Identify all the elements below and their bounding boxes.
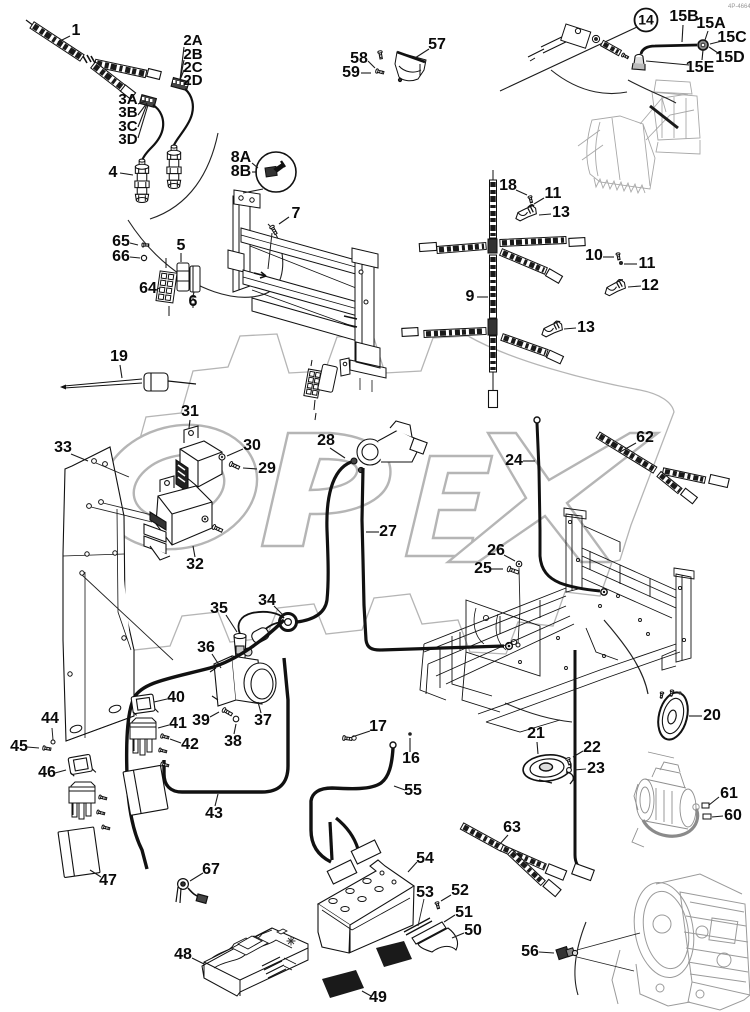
svg-text:15B: 15B [669,8,698,25]
svg-text:45: 45 [10,738,28,755]
svg-text:29: 29 [258,460,276,477]
svg-text:10: 10 [585,247,603,264]
svg-text:39: 39 [192,712,210,729]
svg-text:8B: 8B [231,163,251,180]
svg-text:34: 34 [258,592,276,609]
svg-text:12: 12 [641,277,659,294]
svg-text:21: 21 [527,725,545,742]
svg-text:3D: 3D [118,131,137,148]
svg-text:36: 36 [197,639,215,656]
svg-text:19: 19 [110,348,128,365]
svg-text:40: 40 [167,689,185,706]
svg-text:63: 63 [503,819,521,836]
svg-text:46: 46 [38,764,56,781]
svg-text:15C: 15C [717,29,747,46]
svg-text:5: 5 [177,237,186,254]
svg-text:27: 27 [379,523,397,540]
svg-text:67: 67 [202,861,220,878]
svg-text:24: 24 [505,452,523,469]
svg-text:32: 32 [186,556,204,573]
svg-text:23: 23 [587,760,605,777]
svg-text:15E: 15E [686,59,715,76]
svg-text:4: 4 [109,164,118,181]
svg-text:50: 50 [464,922,482,939]
svg-text:48: 48 [174,946,192,963]
svg-text:47: 47 [99,872,117,889]
svg-text:31: 31 [181,403,199,420]
svg-text:37: 37 [254,712,272,729]
svg-text:14: 14 [638,12,654,28]
svg-text:62: 62 [636,429,654,446]
svg-text:11: 11 [545,185,562,202]
svg-text:11: 11 [639,255,656,272]
svg-text:53: 53 [416,884,434,901]
svg-text:15D: 15D [715,49,744,66]
svg-text:55: 55 [404,782,422,799]
svg-text:16: 16 [402,750,420,767]
svg-text:42: 42 [181,736,199,753]
svg-text:54: 54 [416,850,434,867]
svg-text:57: 57 [428,36,446,53]
svg-text:41: 41 [169,715,187,732]
svg-text:66: 66 [112,248,130,265]
svg-text:64: 64 [139,280,157,297]
svg-text:18: 18 [499,177,517,194]
svg-text:1: 1 [72,22,81,39]
svg-text:26: 26 [487,542,505,559]
svg-text:20: 20 [703,707,721,724]
svg-text:4P-4664: 4P-4664 [728,4,750,10]
svg-text:2D: 2D [183,72,202,89]
svg-text:17: 17 [369,718,387,735]
svg-text:52: 52 [451,882,469,899]
svg-text:28: 28 [317,432,335,449]
svg-text:49: 49 [369,989,387,1006]
svg-text:7: 7 [292,205,301,222]
svg-text:43: 43 [205,805,223,822]
svg-text:33: 33 [54,439,72,456]
svg-text:59: 59 [342,64,360,81]
svg-text:60: 60 [724,807,742,824]
svg-text:22: 22 [583,739,601,756]
svg-text:35: 35 [210,600,228,617]
svg-text:56: 56 [521,943,539,960]
svg-text:9: 9 [466,288,475,305]
svg-text:25: 25 [474,560,492,577]
svg-text:44: 44 [41,710,59,727]
svg-text:13: 13 [577,319,595,336]
svg-text:61: 61 [720,785,738,802]
svg-text:51: 51 [455,904,473,921]
svg-text:30: 30 [243,437,261,454]
svg-text:13: 13 [552,204,570,221]
svg-text:38: 38 [224,733,242,750]
